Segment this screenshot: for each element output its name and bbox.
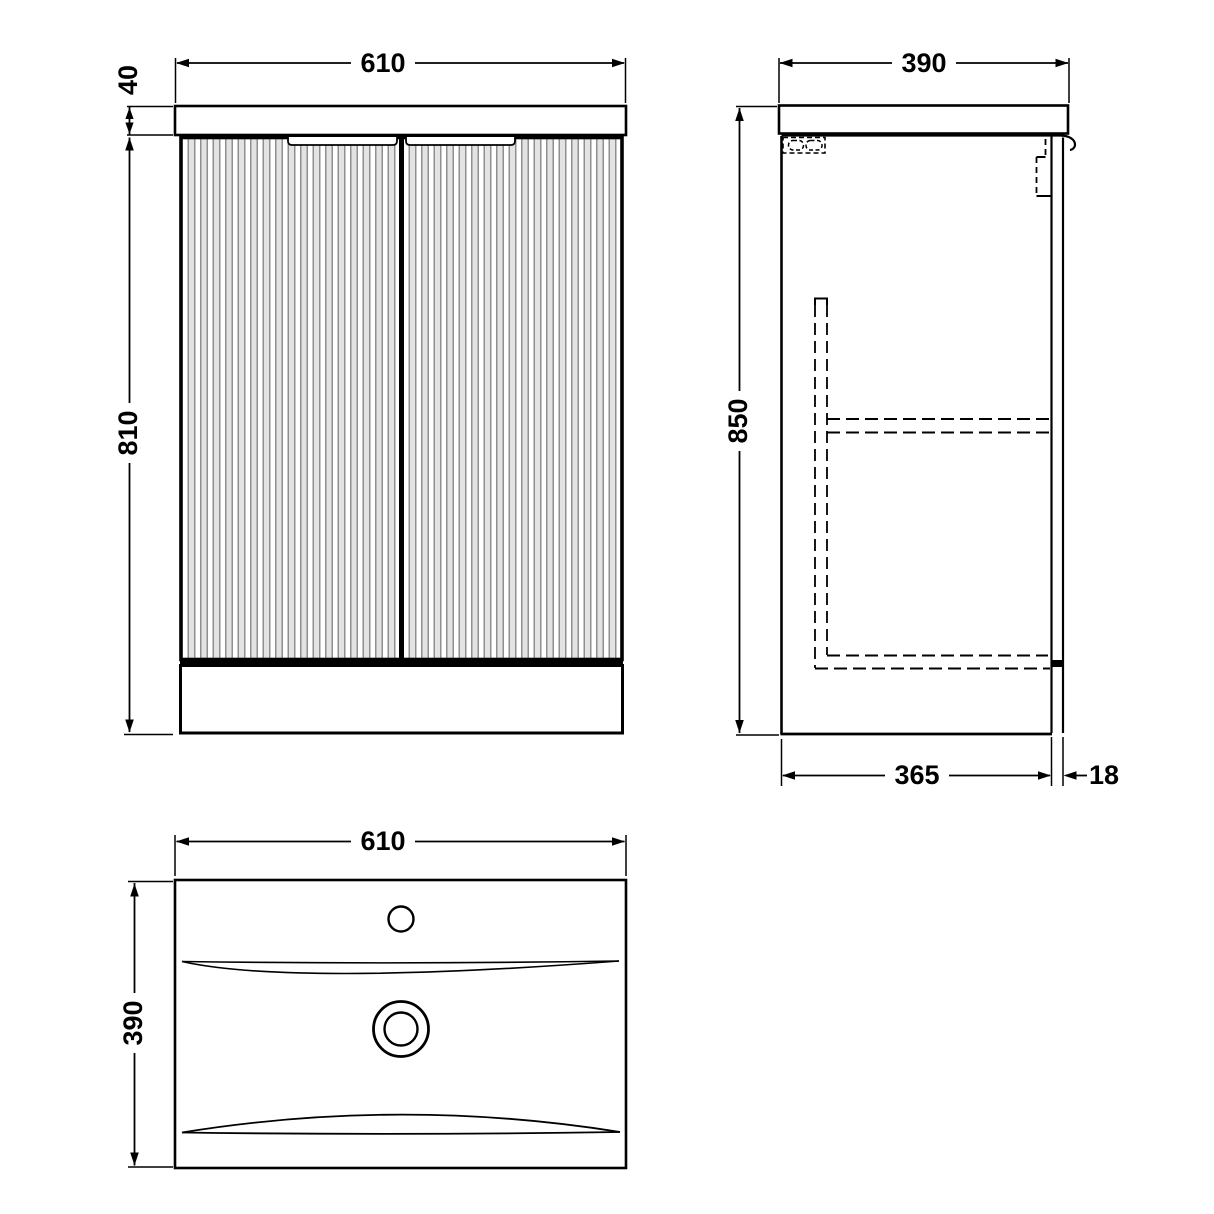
dim-label-front-body-height: 810: [113, 410, 143, 455]
plan-view: [175, 880, 626, 1168]
arrow-right: [1056, 59, 1069, 68]
drawing-linework: 610 40 810 390 850 365 18 610 390: [0, 0, 1214, 1214]
dim-label-front-width: 610: [360, 48, 405, 78]
side-countertop: [779, 106, 1068, 134]
side-hinge-cup-left: [789, 141, 804, 151]
dim-label-side-depth: 390: [901, 48, 946, 78]
arrow-right: [612, 837, 625, 846]
side-back-groove-top: [815, 299, 827, 306]
arrow-up: [130, 884, 139, 897]
arrow-left: [780, 59, 793, 68]
side-hinge-cup-right: [806, 141, 822, 151]
front-right-handle-recess: [406, 137, 515, 145]
arrow-right: [612, 59, 625, 68]
front-countertop: [175, 106, 626, 135]
arrow-right: [1038, 771, 1051, 780]
front-left-handle-recess: [288, 137, 397, 145]
side-view: [779, 106, 1075, 735]
arrow-up: [125, 108, 133, 120]
dim-label-side-carcass-depth: 365: [894, 760, 939, 790]
arrow-left: [1064, 771, 1077, 780]
dim-label-plan-depth: 390: [118, 1000, 148, 1045]
dim-label-plan-width: 610: [360, 826, 405, 856]
arrow-down: [125, 123, 133, 135]
arrow-down: [130, 1153, 139, 1166]
arrow-left: [782, 771, 795, 780]
dim-label-side-overall-height: 850: [723, 398, 753, 443]
front-dimensions: [124, 58, 626, 735]
dim-label-side-panel-thickness: 18: [1089, 760, 1119, 790]
arrow-left: [176, 59, 189, 68]
front-view: [175, 106, 626, 733]
dim-label-front-counter-thickness: 40: [113, 65, 143, 95]
arrow-up: [125, 138, 134, 151]
front-plinth: [181, 666, 623, 734]
side-door-bottom-rail: [1051, 660, 1065, 667]
arrow-left: [176, 837, 189, 846]
arrow-down: [125, 720, 134, 733]
arrow-down: [735, 720, 744, 733]
side-dimensions: [735, 58, 1087, 786]
arrow-up: [735, 108, 744, 121]
vanity-technical-drawing: 610 40 810 390 850 365 18 610 390: [0, 0, 1214, 1214]
